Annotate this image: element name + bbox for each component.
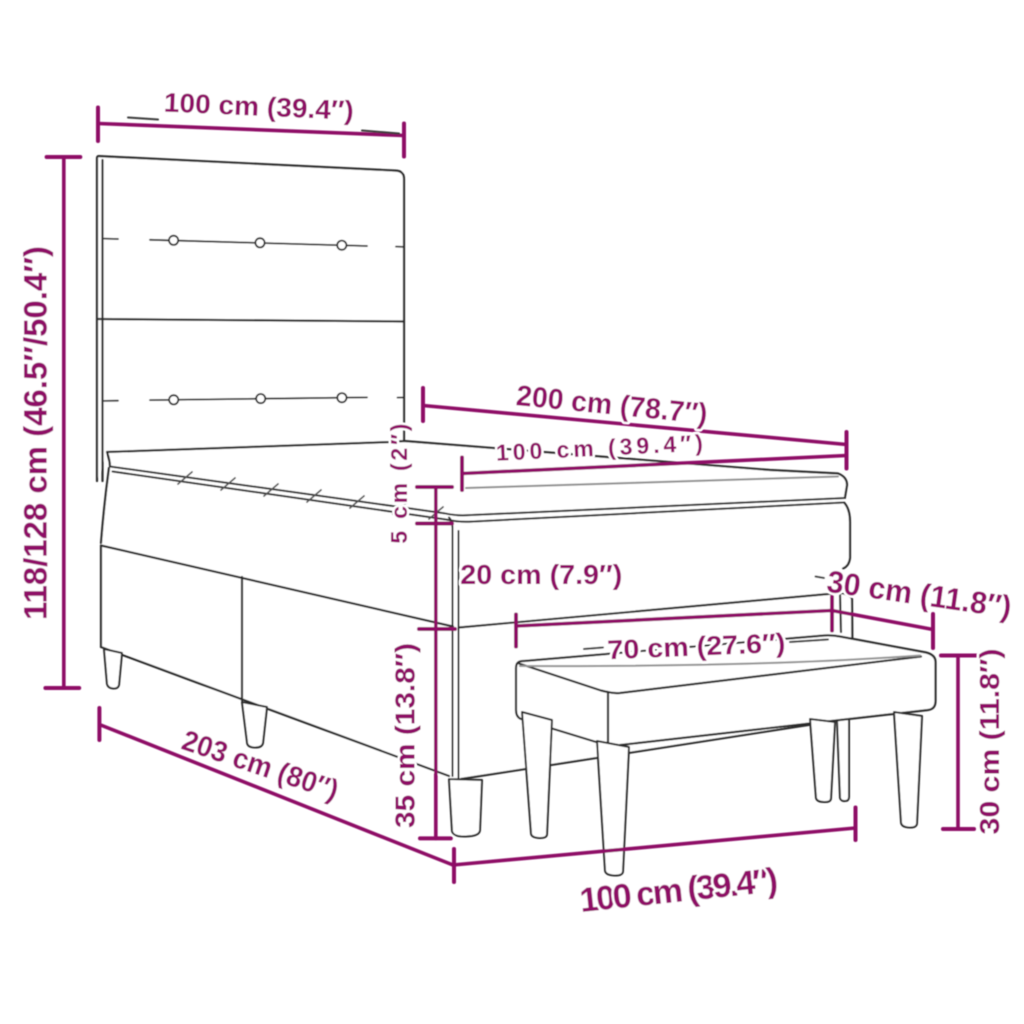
svg-text:20 cm (7.9″): 20 cm (7.9″) (460, 559, 622, 590)
svg-text:100 cm (39.4″): 100 cm (39.4″) (163, 88, 354, 126)
svg-text:30 cm (11.8″): 30 cm (11.8″) (974, 649, 1005, 835)
svg-text:35 cm (13.8″): 35 cm (13.8″) (390, 643, 421, 828)
svg-text:118/128 cm (46.5″/50.4″): 118/128 cm (46.5″/50.4″) (18, 246, 54, 620)
svg-text:5 cm (2″): 5 cm (2″) (386, 424, 412, 544)
